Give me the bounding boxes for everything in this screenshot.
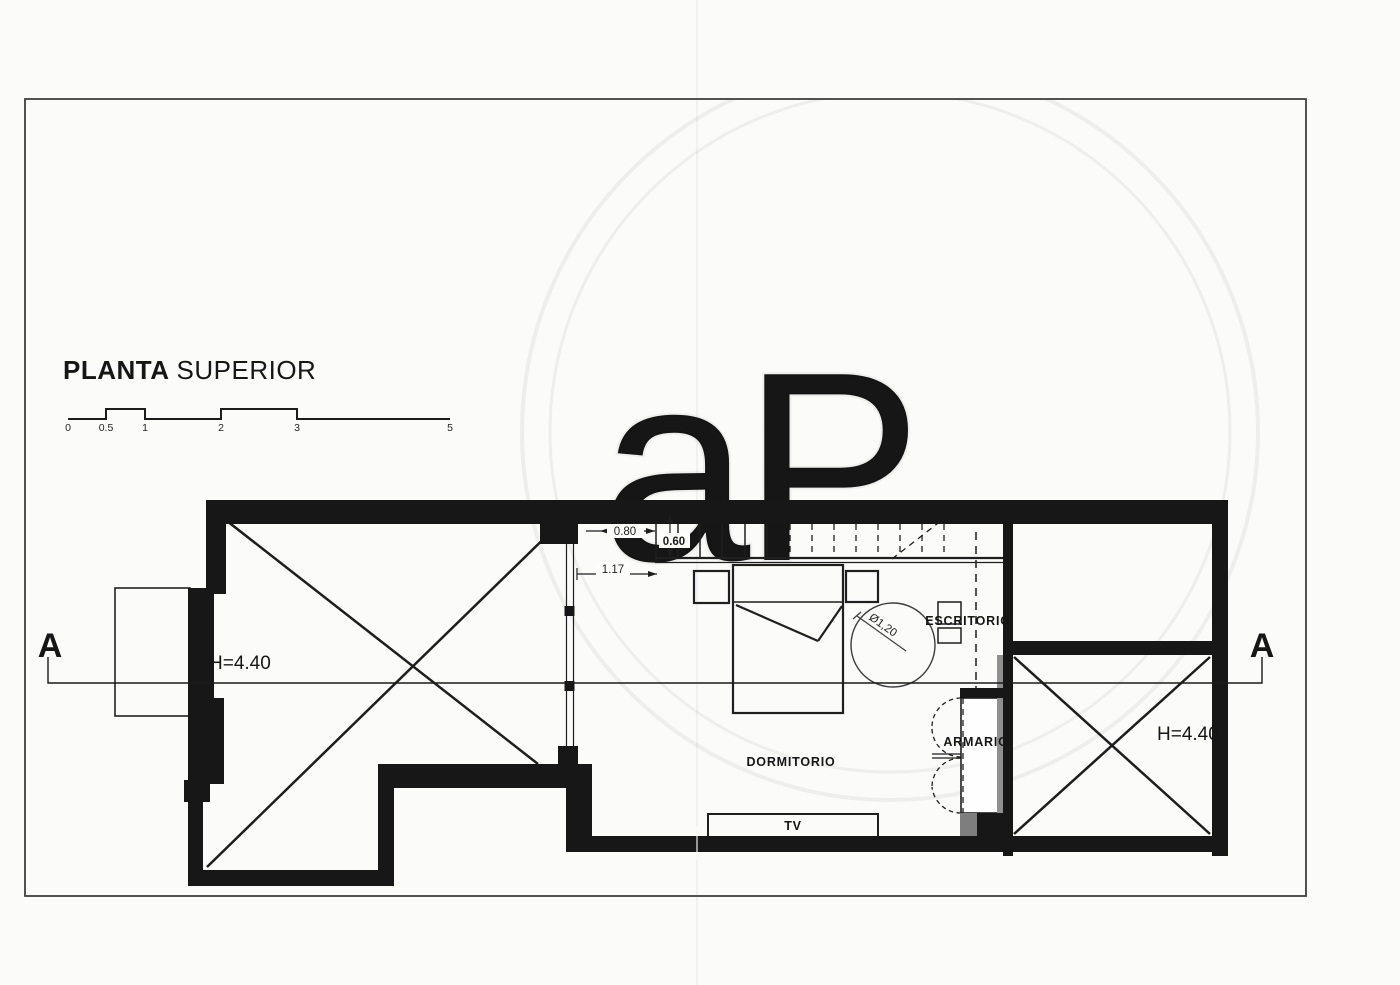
scale-tick-label: 5: [447, 422, 453, 434]
wall-right-inner: [1003, 524, 1013, 856]
wall-stub-stair: [540, 524, 578, 544]
wall-right-divider: [1004, 641, 1213, 655]
partition-mullion: [565, 606, 575, 616]
section-marker-left: A: [38, 627, 63, 665]
wall-right-outer: [1212, 500, 1228, 856]
duct-gray-strip: [997, 655, 1004, 813]
scale-tick-label: 0.5: [99, 422, 114, 434]
scale-tick-label: 2: [218, 422, 224, 434]
wardrobe-outline: [961, 698, 1003, 813]
wall-left-step: [184, 780, 210, 802]
wall-bottom-left: [188, 870, 394, 886]
room-label-tv: TV: [784, 819, 802, 833]
scanned-floor-plan-page: aP PLANTASUPERIOR 0 0.5 1 2 3 5: [0, 0, 1400, 985]
wall-bottom-main: [566, 836, 1228, 852]
wall-left-upper: [206, 500, 226, 594]
wall-below-wardrobe: [977, 813, 1008, 838]
watermark-text: aP: [600, 317, 914, 618]
wall-left-bottom: [188, 800, 203, 878]
scale-tick-label: 1: [142, 422, 148, 434]
wall-above-wardrobe: [960, 688, 1004, 698]
wall-top: [208, 500, 1228, 524]
section-marker-right: A: [1250, 627, 1275, 665]
room-label-escritorio: ESCRITORIO: [925, 614, 1011, 628]
room-label-dormitorio: DORMITORIO: [746, 755, 835, 769]
plan-title: PLANTASUPERIOR: [63, 355, 316, 385]
height-label-right: H=4.40: [1157, 724, 1219, 745]
floor-plan-drawing: aP PLANTASUPERIOR 0 0.5 1 2 3 5: [0, 0, 1400, 985]
height-label-left: H=4.40: [209, 653, 271, 674]
duct-gray-block: [960, 813, 979, 840]
wall-left-lower: [188, 698, 224, 784]
dim-stair-width: 0.60: [663, 536, 685, 548]
room-label-armario: ARMARIO: [943, 735, 1008, 749]
scale-tick-label: 3: [294, 422, 300, 434]
scale-tick-label: 0: [65, 422, 71, 434]
dim-landing: 1.17: [602, 564, 624, 576]
dim-opening: 0.80: [614, 526, 636, 538]
